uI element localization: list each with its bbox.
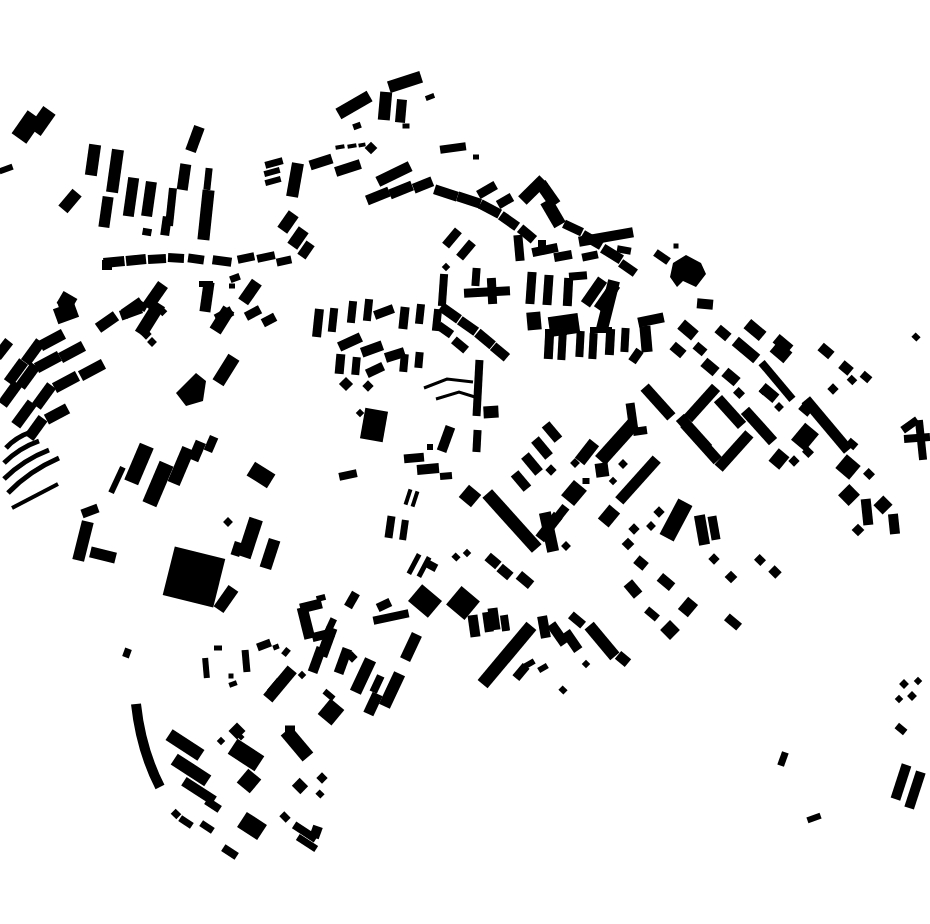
- building-footprint: [202, 658, 210, 678]
- building-footprint: [476, 181, 498, 199]
- building-footprint: [238, 279, 262, 306]
- building-footprint: [264, 176, 281, 186]
- building-footprint: [363, 299, 373, 322]
- building-footprint: [806, 813, 821, 823]
- building-footprint: [827, 383, 838, 394]
- building-footprint: [58, 189, 81, 214]
- building-footprint: [697, 298, 714, 309]
- building-footprint: [32, 382, 56, 410]
- building-footprint: [620, 328, 629, 352]
- building-footprint: [147, 337, 157, 347]
- figure-ground-map: [0, 0, 930, 924]
- building-footprint: [473, 360, 484, 416]
- building-footprint: [142, 228, 152, 236]
- building-footprint: [358, 142, 366, 147]
- building-footprint: [540, 198, 565, 229]
- building-footprint: [292, 778, 308, 794]
- building-footprint: [653, 249, 671, 265]
- building-footprint: [657, 573, 676, 591]
- building-footprint: [80, 504, 99, 518]
- building-footprint: [244, 305, 262, 320]
- building-footprint: [694, 514, 710, 545]
- building-footprint: [558, 685, 567, 694]
- building-footprint: [52, 371, 80, 393]
- building-footprint: [724, 613, 742, 630]
- building-footprint: [417, 463, 440, 475]
- building-footprint: [888, 514, 900, 535]
- building-footprint: [464, 286, 510, 297]
- building-footprint: [628, 348, 643, 365]
- building-footprint: [700, 358, 719, 377]
- building-footprint: [598, 505, 620, 528]
- building-footprint: [618, 259, 638, 277]
- building-footprint: [863, 468, 875, 480]
- building-footprint: [237, 252, 255, 263]
- building-footprint: [660, 499, 693, 542]
- building-footprint: [378, 92, 392, 121]
- building-footprint: [531, 436, 553, 459]
- building-footprint: [852, 524, 865, 537]
- building-footprint: [356, 409, 364, 417]
- building-footprint: [427, 444, 433, 450]
- building-footprint: [136, 704, 160, 787]
- building-footprint: [424, 379, 473, 388]
- building-footprint: [678, 597, 698, 618]
- building-footprint: [622, 538, 635, 551]
- building-footprint: [308, 646, 326, 674]
- building-footprint: [568, 611, 586, 628]
- building-footprint: [895, 695, 903, 703]
- building-footprint: [399, 520, 409, 541]
- building-footprint: [44, 404, 70, 425]
- building-footprint: [124, 443, 153, 486]
- building-footprint: [513, 235, 524, 262]
- building-footprint: [24, 415, 47, 441]
- building-footprint: [309, 154, 334, 171]
- building-footprint: [624, 579, 643, 598]
- building-footprint: [646, 521, 656, 531]
- building-footprint: [126, 254, 147, 266]
- building-footprint: [237, 812, 267, 840]
- building-footprint: [199, 281, 213, 287]
- building-footprint: [563, 278, 573, 306]
- building-footprint: [557, 334, 566, 360]
- building-footprint: [237, 517, 263, 559]
- building-footprint: [379, 671, 405, 709]
- building-footprint: [468, 614, 481, 637]
- building-footprint: [733, 387, 745, 399]
- building-footprint: [526, 311, 542, 330]
- building-footprint: [316, 594, 326, 602]
- building-footprint: [168, 253, 184, 263]
- building-footprint: [256, 251, 275, 263]
- building-footprint: [911, 332, 920, 341]
- building-footprint: [496, 564, 513, 581]
- building-footprint: [98, 196, 113, 228]
- building-footprint: [545, 329, 567, 335]
- building-footprint: [637, 312, 665, 327]
- building-footprint: [415, 304, 425, 325]
- building-footprint: [721, 368, 740, 387]
- building-footprint: [143, 461, 174, 507]
- building-footprint: [352, 122, 362, 130]
- building-footprint: [229, 674, 234, 679]
- building-footprint: [537, 663, 549, 673]
- building-footprint: [95, 311, 119, 333]
- building-footprint: [373, 304, 395, 319]
- building-footprint: [569, 271, 588, 281]
- building-footprint: [404, 489, 413, 505]
- building-footprint: [914, 677, 922, 685]
- building-footprint: [768, 565, 781, 578]
- building-footprint: [362, 380, 373, 391]
- building-footprint: [217, 737, 225, 745]
- building-footprint: [768, 448, 789, 469]
- building-footprint: [451, 552, 460, 561]
- building-footprint: [578, 227, 634, 246]
- building-footprint: [438, 274, 448, 306]
- building-footprint: [732, 337, 761, 363]
- building-footprint: [316, 772, 327, 783]
- building-footprint: [395, 99, 407, 123]
- building-footprint: [575, 439, 599, 465]
- building-footprint: [197, 190, 214, 241]
- building-footprint: [669, 342, 686, 359]
- building-footprint: [404, 453, 425, 464]
- building-footprint: [360, 408, 388, 443]
- building-footprint: [229, 273, 241, 283]
- building-footprint: [344, 591, 360, 609]
- building-footprint: [213, 354, 240, 386]
- building-footprint: [285, 726, 295, 735]
- building-footprint: [581, 250, 598, 261]
- building-footprint: [411, 491, 420, 507]
- building-footprint: [585, 622, 620, 660]
- building-footprint: [482, 489, 541, 553]
- building-footprint: [237, 769, 262, 794]
- building-footprint: [457, 316, 479, 336]
- building-footprint: [408, 584, 442, 618]
- building-footprint: [754, 554, 766, 566]
- building-footprint: [674, 244, 679, 249]
- building-footprint: [398, 307, 409, 330]
- building-footprint: [440, 142, 467, 154]
- building-footprint: [451, 336, 469, 353]
- building-footprint: [212, 255, 232, 267]
- building-footprint: [185, 125, 204, 153]
- building-footprint-canvas: [0, 0, 930, 924]
- building-footprint: [835, 454, 860, 479]
- building-footprint: [403, 124, 410, 129]
- building-footprint: [639, 326, 652, 353]
- building-footprint: [264, 157, 283, 168]
- building-footprint: [847, 375, 858, 386]
- building-footprint: [337, 332, 363, 351]
- building-footprint: [178, 815, 194, 828]
- building-footprint: [516, 571, 535, 589]
- building-footprint: [412, 177, 434, 194]
- building-footprint: [335, 91, 372, 119]
- building-footprint: [400, 632, 422, 662]
- building-footprint: [708, 553, 719, 564]
- building-footprint: [373, 609, 410, 624]
- building-footprint: [425, 93, 435, 101]
- building-footprint: [575, 331, 584, 357]
- building-footprint: [595, 462, 610, 478]
- building-footprint: [203, 168, 212, 191]
- building-footprint: [365, 362, 385, 378]
- building-footprint: [437, 425, 455, 453]
- building-footprint: [163, 546, 226, 607]
- building-footprint: [318, 699, 345, 726]
- building-footprint: [339, 377, 353, 391]
- building-footprint: [817, 343, 834, 360]
- building-footprint: [328, 308, 338, 333]
- building-footprint: [171, 809, 182, 820]
- building-footprint: [260, 538, 281, 570]
- building-footprint: [335, 144, 345, 150]
- building-footprint: [315, 789, 324, 798]
- building-footprint: [12, 484, 58, 508]
- building-footprint: [483, 406, 499, 419]
- building-footprint: [838, 484, 860, 506]
- building-footprint: [838, 360, 854, 375]
- building-footprint: [165, 188, 177, 227]
- building-footprint: [442, 263, 450, 271]
- building-footprint: [653, 506, 664, 517]
- building-footprint: [582, 660, 590, 668]
- building-footprint: [103, 256, 125, 268]
- building-footprint: [644, 606, 660, 621]
- building-footprint: [907, 691, 917, 701]
- building-footprint: [860, 371, 873, 384]
- building-footprint: [214, 646, 222, 651]
- building-footprint: [85, 144, 101, 176]
- building-footprint: [122, 648, 132, 659]
- building-footprint: [199, 820, 215, 833]
- building-footprint: [347, 143, 357, 149]
- building-footprint: [895, 723, 908, 735]
- building-footprint: [583, 478, 590, 484]
- building-footprint: [141, 181, 157, 217]
- building-footprint: [743, 319, 766, 341]
- building-footprint: [498, 211, 520, 231]
- building-footprint: [0, 164, 14, 174]
- building-footprint: [562, 220, 584, 237]
- building-footprint: [298, 671, 306, 679]
- building-footprint: [714, 325, 731, 342]
- building-footprint: [440, 472, 453, 480]
- building-footprint: [715, 430, 754, 472]
- building-footprint: [334, 647, 352, 675]
- building-footprint: [365, 142, 378, 155]
- building-footprint: [791, 423, 819, 451]
- building-footprint: [38, 329, 66, 351]
- building-footprint: [484, 553, 501, 570]
- building-footprint: [281, 647, 291, 657]
- building-footprint: [595, 419, 639, 466]
- building-footprint: [660, 620, 680, 640]
- building-footprint: [561, 541, 571, 551]
- building-footprint: [618, 459, 628, 469]
- building-footprint: [633, 555, 649, 570]
- building-footprint: [463, 549, 471, 557]
- building-footprint: [433, 185, 459, 202]
- building-footprint: [256, 639, 272, 651]
- building-footprint: [670, 255, 706, 287]
- building-footprint: [641, 383, 676, 420]
- building-footprint: [487, 278, 497, 304]
- building-footprint: [511, 470, 532, 492]
- building-footprint: [148, 254, 166, 264]
- building-footprint: [365, 187, 391, 205]
- building-footprint: [176, 373, 206, 406]
- building-footprint: [399, 354, 409, 373]
- building-footprint: [725, 571, 738, 584]
- building-footprint: [276, 256, 292, 267]
- building-footprint: [221, 844, 239, 859]
- building-footprint: [228, 739, 265, 772]
- building-footprint: [272, 644, 279, 651]
- building-footprint: [473, 155, 479, 160]
- building-footprint: [387, 71, 423, 93]
- building-footprint: [322, 689, 335, 701]
- building-footprint: [34, 351, 62, 373]
- building-footprint: [187, 253, 204, 264]
- building-footprint: [166, 729, 205, 761]
- building-footprint: [277, 210, 298, 233]
- building-footprint: [456, 239, 476, 260]
- building-footprint: [58, 341, 86, 363]
- building-footprint: [542, 421, 563, 443]
- building-footprint: [78, 359, 106, 381]
- building-footprint: [334, 159, 362, 177]
- building-footprint: [545, 464, 556, 475]
- building-footprint: [436, 392, 475, 399]
- building-footprint: [588, 333, 597, 359]
- building-footprint: [338, 469, 357, 481]
- building-footprint: [388, 181, 414, 199]
- building-footprint: [351, 357, 361, 376]
- building-footprint: [177, 163, 192, 190]
- building-footprint: [544, 331, 554, 359]
- building-footprint: [0, 338, 13, 360]
- building-footprint: [873, 495, 892, 514]
- building-footprint: [335, 354, 346, 375]
- building-footprint: [861, 499, 874, 526]
- building-footprint: [714, 395, 746, 429]
- building-footprint: [370, 674, 385, 694]
- building-footprint: [777, 751, 788, 767]
- building-footprint: [474, 329, 496, 350]
- building-footprint: [385, 516, 396, 539]
- building-footprint: [496, 193, 514, 209]
- building-footprint: [376, 598, 392, 612]
- building-footprint: [223, 517, 233, 527]
- building-footprint: [123, 177, 139, 217]
- building-footprint: [414, 352, 423, 369]
- building-footprint: [279, 811, 290, 822]
- building-footprint: [500, 615, 510, 632]
- building-footprint: [904, 433, 930, 443]
- building-footprint: [693, 342, 708, 357]
- building-footprint: [472, 430, 481, 452]
- building-footprint: [360, 341, 384, 358]
- building-footprint: [263, 167, 280, 177]
- building-footprint: [471, 268, 480, 287]
- building-footprint: [247, 462, 276, 488]
- building-footprint: [228, 680, 237, 687]
- building-footprint: [261, 313, 278, 328]
- building-footprint: [521, 452, 543, 475]
- building-footprint: [609, 477, 617, 485]
- building-footprint: [525, 272, 536, 305]
- building-footprint: [628, 523, 639, 534]
- building-footprint: [899, 679, 909, 689]
- building-footprint: [788, 455, 799, 466]
- building-footprint: [677, 320, 699, 341]
- building-footprint: [774, 402, 784, 412]
- building-footprint: [542, 275, 553, 306]
- building-footprint: [106, 149, 124, 193]
- building-footprint: [108, 466, 125, 494]
- building-footprint: [347, 301, 357, 324]
- building-footprint: [490, 342, 510, 361]
- building-footprint: [442, 227, 462, 248]
- building-footprint: [89, 547, 117, 564]
- building-footprint: [312, 309, 324, 338]
- building-footprint: [229, 284, 235, 289]
- building-footprint: [242, 650, 251, 673]
- building-footprint: [459, 485, 482, 508]
- building-footprint: [707, 515, 720, 540]
- building-footprint: [286, 162, 304, 198]
